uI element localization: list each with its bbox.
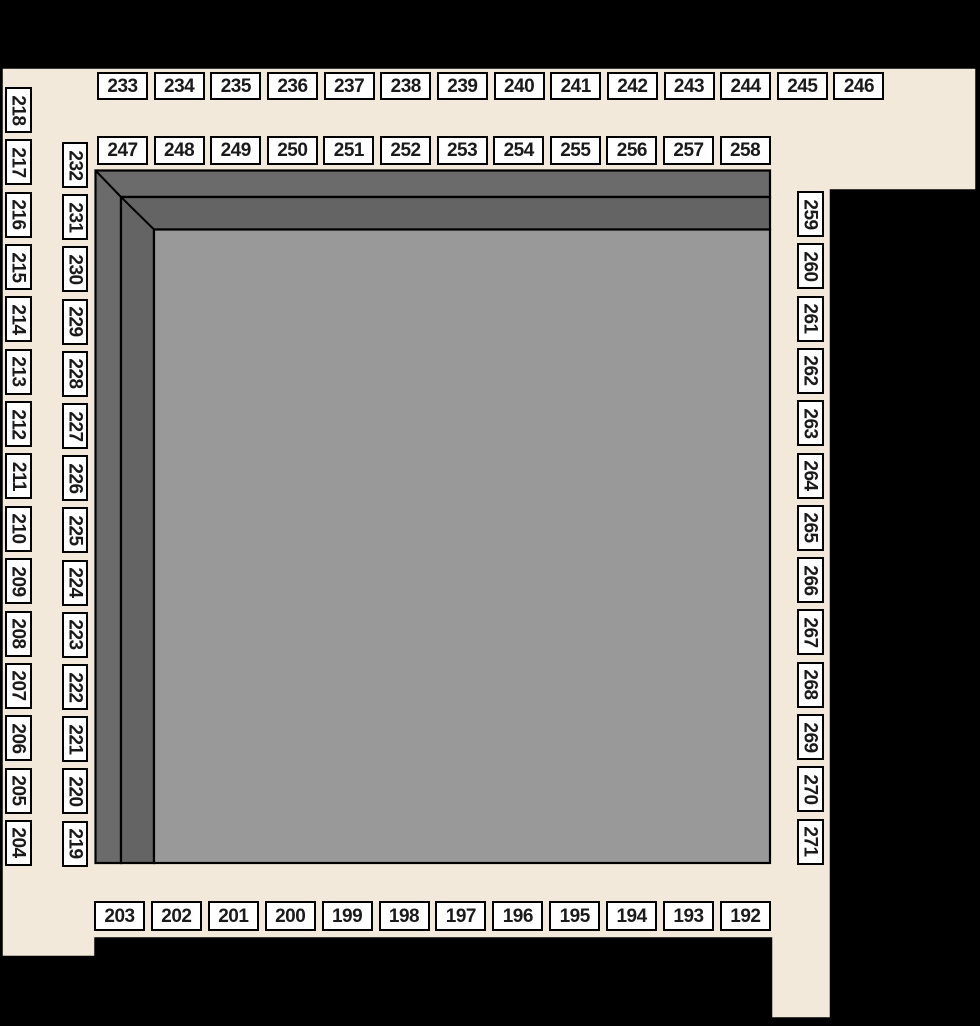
section-215[interactable]: 215 (5, 244, 32, 290)
section-label: 244 (731, 77, 761, 96)
section-214[interactable]: 214 (5, 296, 32, 342)
section-label: 202 (161, 907, 191, 926)
section-228[interactable]: 228 (62, 351, 88, 397)
section-label: 258 (730, 141, 760, 160)
section-label: 269 (801, 722, 820, 752)
section-207[interactable]: 207 (5, 663, 32, 709)
section-label: 255 (560, 141, 590, 160)
section-259[interactable]: 259 (797, 191, 824, 237)
section-216[interactable]: 216 (5, 192, 32, 238)
section-label: 226 (66, 463, 85, 493)
section-label: 197 (446, 907, 476, 926)
section-208[interactable]: 208 (5, 611, 32, 657)
section-label: 267 (801, 617, 820, 647)
section-label: 192 (730, 907, 760, 926)
section-label: 242 (617, 77, 647, 96)
section-267[interactable]: 267 (797, 609, 824, 655)
section-250[interactable]: 250 (267, 136, 318, 165)
section-label: 233 (107, 77, 137, 96)
section-200[interactable]: 200 (265, 901, 316, 931)
section-label: 201 (218, 907, 248, 926)
section-247[interactable]: 247 (97, 136, 148, 165)
section-203[interactable]: 203 (94, 901, 145, 931)
section-label: 203 (104, 907, 134, 926)
section-label: 205 (9, 775, 28, 805)
section-202[interactable]: 202 (151, 901, 202, 931)
section-label: 251 (334, 141, 364, 160)
section-label: 259 (801, 199, 820, 229)
section-263[interactable]: 263 (797, 400, 824, 446)
section-label: 252 (390, 141, 420, 160)
section-256[interactable]: 256 (606, 136, 657, 165)
section-label: 196 (503, 907, 533, 926)
section-label: 268 (801, 670, 820, 700)
section-225[interactable]: 225 (62, 507, 88, 553)
section-label: 207 (9, 671, 28, 701)
section-label: 239 (447, 77, 477, 96)
section-220[interactable]: 220 (62, 768, 88, 814)
section-label: 214 (9, 304, 28, 334)
section-label: 250 (277, 141, 307, 160)
section-label: 263 (801, 408, 820, 438)
section-label: 206 (9, 723, 28, 753)
section-194[interactable]: 194 (606, 901, 657, 931)
section-label: 238 (391, 77, 421, 96)
section-label: 204 (9, 828, 28, 858)
section-label: 211 (9, 462, 28, 491)
section-201[interactable]: 201 (208, 901, 259, 931)
section-192[interactable]: 192 (720, 901, 771, 931)
section-198[interactable]: 198 (379, 901, 430, 931)
section-234[interactable]: 234 (154, 72, 205, 100)
section-245[interactable]: 245 (777, 72, 828, 100)
section-205[interactable]: 205 (5, 768, 32, 814)
section-label: 228 (66, 359, 85, 389)
section-label: 215 (9, 252, 28, 282)
section-233[interactable]: 233 (97, 72, 148, 100)
section-268[interactable]: 268 (797, 662, 824, 708)
section-label: 210 (9, 514, 28, 544)
section-label: 222 (66, 672, 85, 702)
section-257[interactable]: 257 (663, 136, 714, 165)
venue-seating-map: 2332342352362372382392402412422432442452… (0, 0, 980, 1026)
section-248[interactable]: 248 (154, 136, 205, 165)
section-label: 213 (9, 357, 28, 387)
section-254[interactable]: 254 (493, 136, 544, 165)
section-224[interactable]: 224 (62, 560, 88, 606)
section-label: 271 (801, 826, 820, 856)
section-227[interactable]: 227 (62, 403, 88, 449)
section-226[interactable]: 226 (62, 455, 88, 501)
section-label: 266 (801, 565, 820, 595)
section-219[interactable]: 219 (62, 821, 88, 867)
section-label: 240 (504, 77, 534, 96)
section-label: 262 (801, 356, 820, 386)
section-243[interactable]: 243 (664, 72, 715, 100)
section-label: 231 (66, 202, 85, 232)
section-223[interactable]: 223 (62, 612, 88, 658)
section-237[interactable]: 237 (324, 72, 375, 100)
section-label: 264 (801, 460, 820, 490)
section-196[interactable]: 196 (492, 901, 543, 931)
section-218[interactable]: 218 (5, 87, 32, 133)
section-221[interactable]: 221 (62, 716, 88, 762)
section-236[interactable]: 236 (267, 72, 318, 100)
section-262[interactable]: 262 (797, 348, 824, 394)
section-label: 208 (9, 618, 28, 648)
section-255[interactable]: 255 (550, 136, 601, 165)
section-229[interactable]: 229 (62, 299, 88, 345)
section-label: 241 (561, 77, 591, 96)
section-235[interactable]: 235 (210, 72, 261, 100)
section-231[interactable]: 231 (62, 194, 88, 240)
section-212[interactable]: 212 (5, 401, 32, 447)
section-label: 249 (221, 141, 251, 160)
section-246[interactable]: 246 (833, 72, 884, 100)
section-252[interactable]: 252 (380, 136, 431, 165)
section-label: 253 (447, 141, 477, 160)
section-label: 218 (9, 95, 28, 125)
section-label: 270 (801, 774, 820, 804)
section-label: 217 (9, 147, 28, 177)
section-label: 219 (66, 828, 85, 858)
section-232[interactable]: 232 (62, 142, 88, 188)
section-label: 237 (334, 77, 364, 96)
section-label: 254 (504, 141, 534, 160)
section-label: 234 (164, 77, 194, 96)
section-label: 260 (801, 251, 820, 281)
section-label: 225 (66, 515, 85, 545)
section-label: 227 (66, 411, 85, 441)
section-label: 212 (9, 409, 28, 439)
section-238[interactable]: 238 (380, 72, 431, 100)
section-230[interactable]: 230 (62, 246, 88, 292)
section-209[interactable]: 209 (5, 558, 32, 604)
section-260[interactable]: 260 (797, 243, 824, 289)
section-label: 229 (66, 306, 85, 336)
section-label: 224 (66, 567, 85, 597)
section-269[interactable]: 269 (797, 714, 824, 760)
section-258[interactable]: 258 (720, 136, 771, 165)
section-206[interactable]: 206 (5, 715, 32, 761)
section-204[interactable]: 204 (5, 820, 32, 866)
section-211[interactable]: 211 (5, 453, 32, 499)
section-270[interactable]: 270 (797, 766, 824, 812)
section-199[interactable]: 199 (322, 901, 373, 931)
section-label: 199 (332, 907, 362, 926)
section-244[interactable]: 244 (720, 72, 771, 100)
section-label: 247 (107, 141, 137, 160)
section-261[interactable]: 261 (797, 296, 824, 342)
section-layer: 2332342352362372382392402412422432442452… (0, 0, 980, 1026)
section-240[interactable]: 240 (494, 72, 545, 100)
section-249[interactable]: 249 (210, 136, 261, 165)
section-label: 236 (277, 77, 307, 96)
section-label: 195 (560, 907, 590, 926)
section-label: 232 (66, 150, 85, 180)
section-241[interactable]: 241 (550, 72, 601, 100)
section-242[interactable]: 242 (607, 72, 658, 100)
section-195[interactable]: 195 (549, 901, 600, 931)
section-label: 198 (389, 907, 419, 926)
section-266[interactable]: 266 (797, 557, 824, 603)
section-label: 248 (164, 141, 194, 160)
section-264[interactable]: 264 (797, 453, 824, 499)
section-label: 243 (674, 77, 704, 96)
section-193[interactable]: 193 (663, 901, 714, 931)
section-222[interactable]: 222 (62, 664, 88, 710)
section-251[interactable]: 251 (323, 136, 374, 165)
section-label: 246 (844, 77, 874, 96)
section-label: 235 (221, 77, 251, 96)
section-label: 193 (673, 907, 703, 926)
section-label: 209 (9, 566, 28, 596)
section-213[interactable]: 213 (5, 349, 32, 395)
section-label: 223 (66, 620, 85, 650)
section-label: 230 (66, 254, 85, 284)
section-217[interactable]: 217 (5, 139, 32, 185)
section-label: 265 (801, 513, 820, 543)
section-197[interactable]: 197 (435, 901, 486, 931)
section-label: 257 (673, 141, 703, 160)
section-label: 216 (9, 200, 28, 230)
section-label: 200 (275, 907, 305, 926)
section-253[interactable]: 253 (437, 136, 488, 165)
section-label: 261 (801, 303, 820, 333)
section-label: 245 (787, 77, 817, 96)
section-label: 256 (617, 141, 647, 160)
section-265[interactable]: 265 (797, 505, 824, 551)
section-271[interactable]: 271 (797, 819, 824, 865)
section-label: 221 (66, 724, 85, 754)
section-210[interactable]: 210 (5, 506, 32, 552)
section-label: 194 (616, 907, 646, 926)
section-label: 220 (66, 776, 85, 806)
section-239[interactable]: 239 (437, 72, 488, 100)
